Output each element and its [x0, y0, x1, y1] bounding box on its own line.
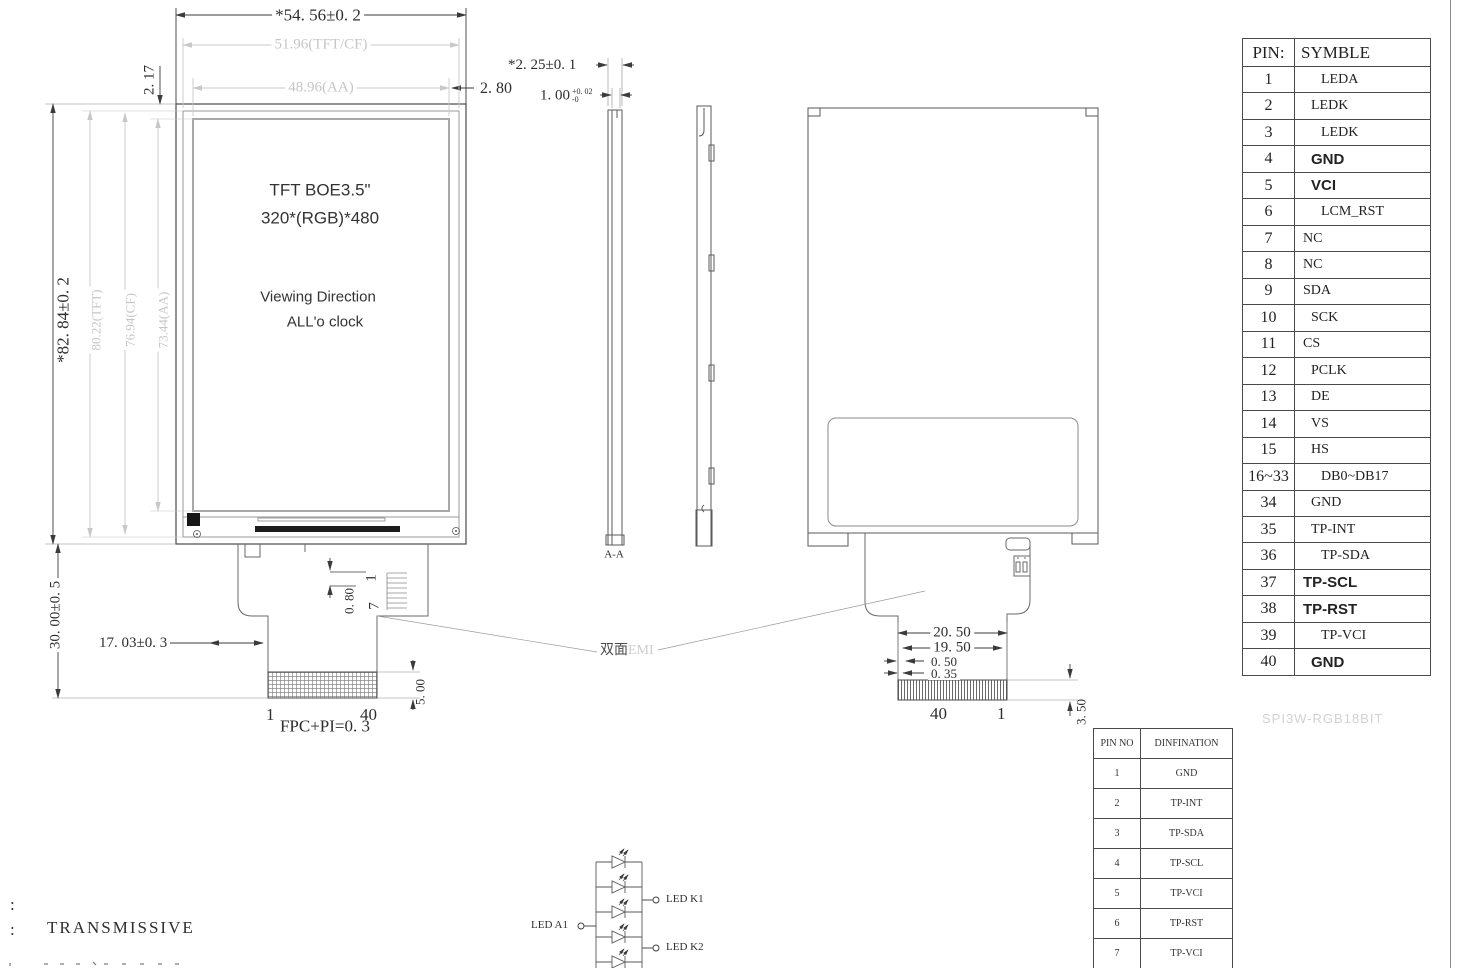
fpc-note: FPC+PI=0. 3: [280, 718, 370, 735]
dim-width-total: *54. 56±0. 2: [272, 7, 364, 24]
pin-number-cell: 5: [1243, 172, 1295, 198]
emi-label: 双面EMI: [600, 644, 654, 658]
table-row: 6TP-RST: [1094, 909, 1233, 939]
table-row: 34GND: [1243, 490, 1431, 516]
pin-number-cell: 4: [1243, 146, 1295, 172]
pin-table-header: PIN: SYMBLE: [1243, 39, 1431, 67]
pin-number-cell: 7: [1094, 939, 1141, 968]
pin-number-cell: 37: [1243, 569, 1295, 595]
led-symbols: [612, 849, 628, 968]
table-row: 15HS: [1243, 437, 1431, 463]
viewing-direction-line1: Viewing Direction: [260, 290, 376, 305]
table-row: 12PCLK: [1243, 358, 1431, 384]
back-fpc-connector: [898, 680, 1007, 700]
dim-fpc-offset: 17. 03±0. 3: [96, 636, 170, 651]
note-transmissive: TRANSMISSIVE: [47, 919, 195, 936]
pin-symbol-cell: TP-SDA: [1141, 819, 1233, 849]
thickness-tolerance: +0. 02-0: [572, 88, 593, 104]
pin-table-header-symbol: SYMBLE: [1295, 39, 1431, 67]
back-view-outline: [808, 108, 1098, 546]
table-row: 3TP-SDA: [1094, 819, 1233, 849]
back-dim-lines: [884, 622, 1078, 716]
conn-pin-first-label: 1: [266, 706, 275, 723]
table-row: 7NC: [1243, 225, 1431, 251]
backlight-pin-comb: [387, 573, 407, 610]
pin-number-cell: 40: [1243, 649, 1295, 676]
table-row: 37TP-SCL: [1243, 569, 1431, 595]
pin-symbol-cell: TP-INT: [1141, 789, 1233, 819]
led-circuit: [578, 849, 659, 968]
table-row: 8NC: [1243, 252, 1431, 278]
pin-number-cell: 5: [1094, 879, 1141, 909]
table-row: 39TP-VCI: [1243, 622, 1431, 648]
pin-number-cell: 3: [1243, 119, 1295, 145]
pin-symbol-cell: TP-RST: [1141, 909, 1233, 939]
table-row: 6LCM_RST: [1243, 199, 1431, 225]
emi-label-dark: 双面: [600, 643, 628, 658]
dim-fpc-length: 30. 00±0. 5: [49, 578, 64, 652]
bl-pin-first-label: 1: [365, 574, 380, 582]
table-row: 36TP-SDA: [1243, 543, 1431, 569]
back-pin-left-label: 40: [930, 705, 947, 722]
emi-label-light: EMI: [628, 643, 654, 658]
pin-number-cell: 34: [1243, 490, 1295, 516]
back-pin-right-label: 1: [997, 705, 1006, 722]
pin-symbol-cell: VS: [1295, 411, 1431, 437]
pin-symbol-cell: GND: [1295, 146, 1431, 172]
pin-symbol-cell: LCM_RST: [1295, 199, 1431, 225]
pin-number-cell: 14: [1243, 411, 1295, 437]
pin-symbol-cell: DE: [1295, 384, 1431, 410]
dim-back-w4: 0. 35: [928, 667, 960, 680]
pin-number-cell: 1: [1243, 67, 1295, 93]
pin-symbol-cell: CS: [1295, 331, 1431, 357]
drawing-linework: [0, 0, 1460, 968]
side-profile-outline: [696, 106, 714, 546]
table-row: 1LEDA: [1243, 67, 1431, 93]
dim-width-tft: 51.96(TFT/CF): [272, 38, 371, 53]
pin-symbol-table: PIN: SYMBLE 1LEDA2LEDK3LEDK4GND5VCI6LCM_…: [1242, 38, 1431, 676]
table-row: 7TP-VCI: [1094, 939, 1233, 968]
dim-width-aa: 48.96(AA): [285, 81, 356, 96]
pin-symbol-cell: LEDA: [1295, 67, 1431, 93]
section-label: A-A: [604, 550, 624, 561]
pin-symbol-cell: TP-SCL: [1141, 849, 1233, 879]
pin-number-cell: 13: [1243, 384, 1295, 410]
dim-conn-depth: 5. 00: [414, 679, 427, 705]
pin-symbol-cell: DB0~DB17: [1295, 464, 1431, 490]
led-cathode1-label: LED K1: [666, 894, 704, 905]
table-row: 2TP-INT: [1094, 789, 1233, 819]
engineering-drawing-sheet: *54. 56±0. 2 51.96(TFT/CF) 48.96(AA) 2. …: [0, 0, 1460, 968]
dim-bl-pin-pitch: 0. 80: [343, 588, 356, 614]
pin-symbol-cell: GND: [1295, 490, 1431, 516]
pin-symbol-cell: SCK: [1295, 305, 1431, 331]
table-row: 3LEDK: [1243, 119, 1431, 145]
table-row: 4TP-SCL: [1094, 849, 1233, 879]
section-aa-dims: [596, 58, 634, 108]
section-aa-outline: [606, 110, 624, 545]
pin-symbol-cell: HS: [1295, 437, 1431, 463]
table-row: 2LEDK: [1243, 93, 1431, 119]
dim-thickness-total: *2. 25±0. 1: [508, 58, 576, 73]
pin-number-cell: 1: [1094, 759, 1141, 789]
pin-number-cell: 9: [1243, 278, 1295, 304]
pin-symbol-cell: TP-SDA: [1295, 543, 1431, 569]
dim-height-tft: 80.22(TFT): [90, 286, 103, 353]
table-row: 38TP-RST: [1243, 596, 1431, 622]
dim-height-cf: 76.94(CF): [124, 290, 137, 350]
pin-symbol-cell: VCI: [1295, 172, 1431, 198]
pin-symbol-cell: GND: [1295, 649, 1431, 676]
dim-offset-top: 2. 17: [143, 65, 158, 95]
note-line2-prefix: :: [10, 921, 15, 938]
table-row: 4GND: [1243, 146, 1431, 172]
pin-number-cell: 12: [1243, 358, 1295, 384]
pin-symbol-cell: TP-VCI: [1295, 622, 1431, 648]
thickness-main: 1. 00: [540, 87, 570, 103]
pin-symbol-cell: GND: [1141, 759, 1233, 789]
pin-number-cell: 15: [1243, 437, 1295, 463]
table-row: 5VCI: [1243, 172, 1431, 198]
pin-symbol-cell: NC: [1295, 225, 1431, 251]
touch-pin-table: PIN NO DINFINATION 1GND2TP-INT3TP-SDA4TP…: [1093, 728, 1233, 968]
pin-symbol-cell: PCLK: [1295, 358, 1431, 384]
table-row: 13DE: [1243, 384, 1431, 410]
dim-back-depth: 3. 50: [1075, 699, 1088, 725]
table-row: 1GND: [1094, 759, 1233, 789]
tp-table-header: PIN NO DINFINATION: [1094, 729, 1233, 759]
tp-table-header-pin: PIN NO: [1094, 729, 1141, 759]
tol-minus: -0: [572, 96, 593, 104]
table-row: 10SCK: [1243, 305, 1431, 331]
pin-symbol-cell: TP-INT: [1295, 516, 1431, 542]
bl-pin-last-label: 7: [368, 602, 383, 610]
pin-number-cell: 6: [1243, 199, 1295, 225]
interface-label: SPI3W-RGB18BIT: [1262, 712, 1383, 725]
pin-number-cell: 8: [1243, 252, 1295, 278]
display-resolution: 320*(RGB)*480: [261, 210, 379, 227]
viewing-direction-line2: ALL'o clock: [287, 315, 363, 330]
display-title: TFT BOE3.5": [269, 182, 370, 199]
pin-number-cell: 10: [1243, 305, 1295, 331]
pin-number-cell: 2: [1094, 789, 1141, 819]
cutoff-text-fragments: [10, 962, 179, 966]
pin-symbol-cell: TP-VCI: [1141, 939, 1233, 968]
led-anode-label: LED A1: [531, 920, 568, 931]
pin-number-cell: 35: [1243, 516, 1295, 542]
pin-number-cell: 3: [1094, 819, 1141, 849]
pin-number-cell: 36: [1243, 543, 1295, 569]
table-row: 11CS: [1243, 331, 1431, 357]
pin-symbol-cell: LEDK: [1295, 93, 1431, 119]
table-row: 14VS: [1243, 411, 1431, 437]
table-row: 40GND: [1243, 649, 1431, 676]
tp-table-header-def: DINFINATION: [1141, 729, 1233, 759]
pin-symbol-cell: TP-VCI: [1141, 879, 1233, 909]
table-row: 9SDA: [1243, 278, 1431, 304]
pin-symbol-cell: TP-RST: [1295, 596, 1431, 622]
pin-number-cell: 16~33: [1243, 464, 1295, 490]
dim-thickness-value: 1. 00+0. 02-0: [540, 88, 593, 104]
dim-back-w1: 20. 50: [930, 626, 974, 641]
pin-symbol-cell: LEDK: [1295, 119, 1431, 145]
dim-height-total: *82. 84±0. 2: [55, 274, 72, 366]
front-dim-lines: [45, 8, 474, 710]
pin-number-cell: 4: [1094, 849, 1141, 879]
front-fpc-connector: [268, 672, 377, 698]
note-line1-prefix: :: [10, 896, 15, 913]
front-dim-lines-gray: [82, 38, 459, 537]
table-row: 16~33DB0~DB17: [1243, 464, 1431, 490]
table-row: 5TP-VCI: [1094, 879, 1233, 909]
pin-symbol-cell: TP-SCL: [1295, 569, 1431, 595]
led-cathode2-label: LED K2: [666, 942, 704, 953]
pin-symbol-cell: NC: [1295, 252, 1431, 278]
pin-number-cell: 39: [1243, 622, 1295, 648]
pin-number-cell: 6: [1094, 909, 1141, 939]
dim-offset-right: 2. 80: [480, 81, 512, 97]
pin-number-cell: 38: [1243, 596, 1295, 622]
pin-table-header-pin: PIN:: [1243, 39, 1295, 67]
dim-height-aa: 73.44(AA): [157, 289, 170, 352]
pin-number-cell: 2: [1243, 93, 1295, 119]
pin-number-cell: 11: [1243, 331, 1295, 357]
pin-symbol-cell: SDA: [1295, 278, 1431, 304]
pin-number-cell: 7: [1243, 225, 1295, 251]
table-row: 35TP-INT: [1243, 516, 1431, 542]
